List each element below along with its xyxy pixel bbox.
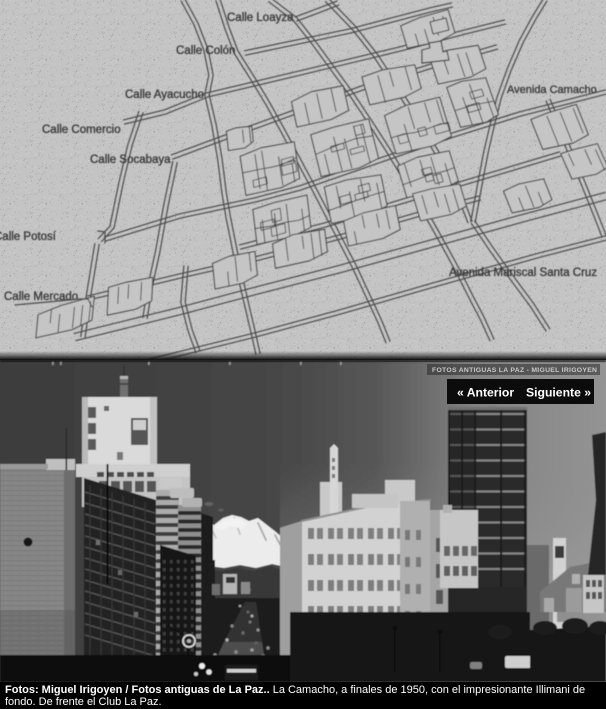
svg-text:Calle Loayza: Calle Loayza — [227, 12, 294, 24]
svg-text:Calle Socabaya: Calle Socabaya — [90, 154, 171, 166]
svg-text:Avenida Camacho: Avenida Camacho — [507, 84, 597, 96]
svg-text:Calle Colón: Calle Colón — [176, 45, 235, 57]
svg-text:Avenida Mariscal Santa Cruz: Avenida Mariscal Santa Cruz — [449, 267, 597, 279]
svg-text:Siguiente »: Siguiente » — [526, 386, 591, 400]
svg-text:Calle Potosí: Calle Potosí — [0, 231, 57, 243]
svg-text:Calle Mercado: Calle Mercado — [4, 291, 78, 303]
svg-text:Calle Comercio: Calle Comercio — [42, 124, 121, 136]
svg-text:FOTOS ANTIGUAS LA PAZ - MIGUEL: FOTOS ANTIGUAS LA PAZ - MIGUEL IRIGOYEN — [432, 367, 597, 374]
svg-text:« Anterior: « Anterior — [457, 386, 514, 400]
svg-text:Calle Ayacucho: Calle Ayacucho — [125, 89, 204, 101]
